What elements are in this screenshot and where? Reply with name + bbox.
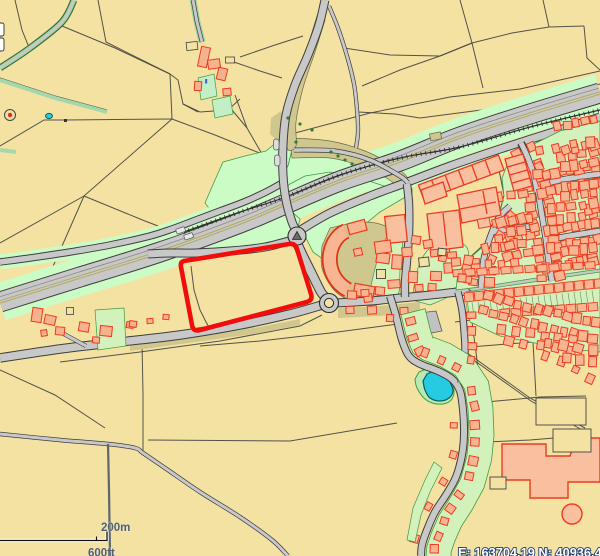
svg-text:600ft: 600ft [88,548,115,556]
svg-text:E: 163704.19 N: 40936.45: E: 163704.19 N: 40936.45 [458,545,600,556]
svg-text:200m: 200m [101,522,130,534]
